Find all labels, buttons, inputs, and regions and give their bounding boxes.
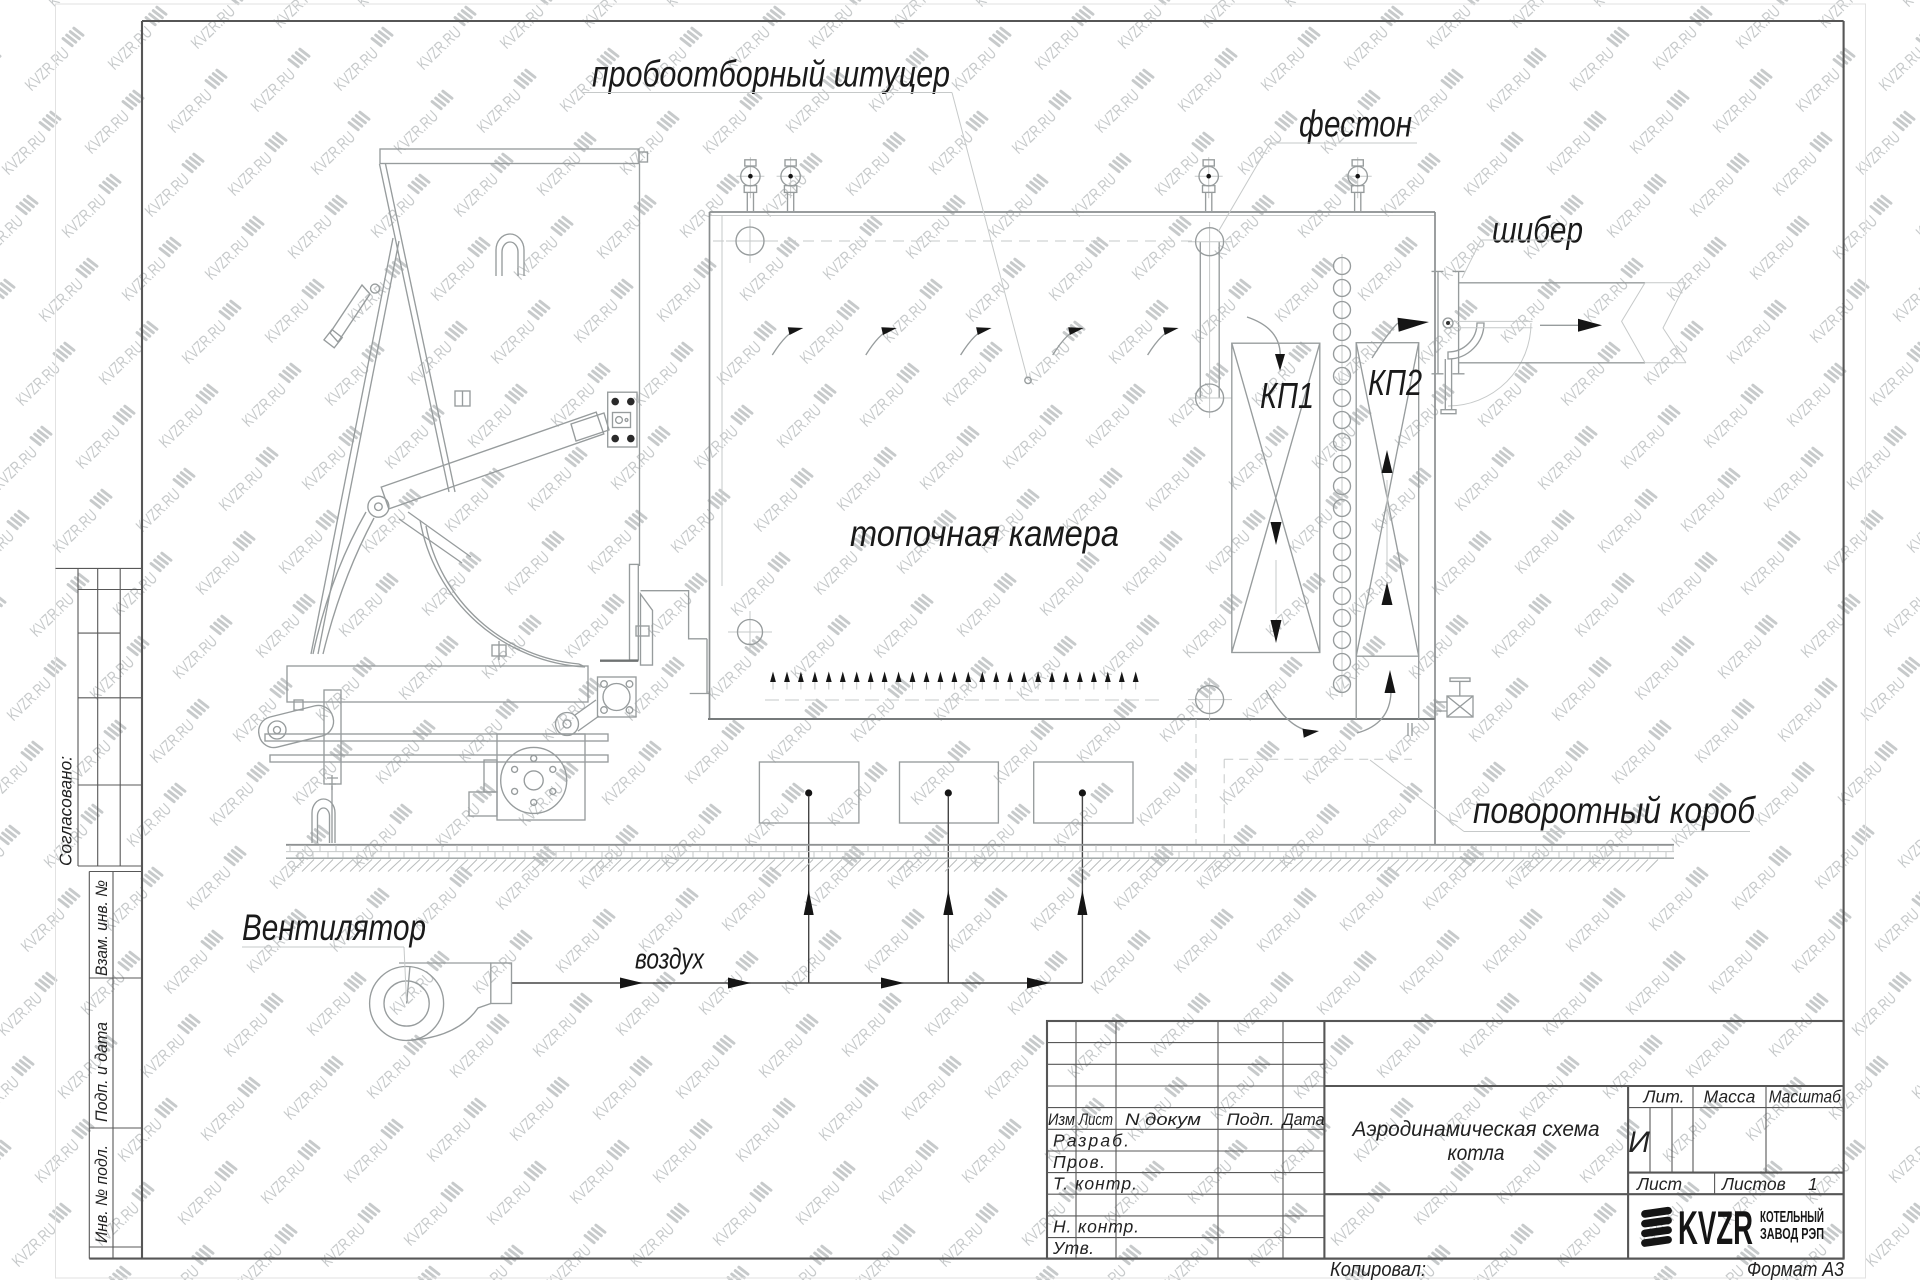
svg-text:Подп.: Подп. <box>1227 1110 1275 1129</box>
svg-text:Аэродинамическая схема: Аэродинамическая схема <box>1351 1117 1600 1141</box>
svg-text:топочная камера: топочная камера <box>850 513 1119 554</box>
svg-text:Масса: Масса <box>1704 1087 1756 1107</box>
svg-text:КП2: КП2 <box>1368 362 1422 403</box>
svg-text:Формат А3: Формат А3 <box>1747 1258 1845 1280</box>
svg-text:Пров.: Пров. <box>1053 1152 1105 1172</box>
svg-text:Подп. и дата: Подп. и дата <box>93 1022 111 1122</box>
svg-text:N докум: N докум <box>1125 1110 1201 1129</box>
svg-text:Копировал:: Копировал: <box>1330 1258 1426 1280</box>
svg-text:воздух: воздух <box>635 944 705 976</box>
svg-text:КП1: КП1 <box>1260 375 1314 416</box>
svg-text:Утв.: Утв. <box>1052 1238 1094 1258</box>
svg-text:пробоотборный штуцер: пробоотборный штуцер <box>592 54 950 95</box>
svg-text:Н. контр.: Н. контр. <box>1053 1217 1139 1237</box>
svg-text:Разраб.: Разраб. <box>1053 1131 1129 1151</box>
svg-text:Лист: Лист <box>1078 1110 1113 1129</box>
svg-text:Лит.: Лит. <box>1643 1087 1685 1107</box>
svg-text:котла: котла <box>1448 1141 1505 1165</box>
svg-text:Взам. инв. №: Взам. инв. № <box>93 880 111 976</box>
svg-text:Т. контр.: Т. контр. <box>1053 1174 1137 1194</box>
svg-text:Лист: Лист <box>1636 1174 1682 1194</box>
svg-text:фестон: фестон <box>1299 104 1412 145</box>
svg-text:ЗАВОД РЭП: ЗАВОД РЭП <box>1760 1226 1824 1243</box>
svg-text:Инв. № подл.: Инв. № подл. <box>93 1145 111 1243</box>
svg-text:Изм: Изм <box>1048 1110 1075 1129</box>
svg-text:поворотный короб: поворотный короб <box>1473 790 1756 831</box>
svg-text:шибер: шибер <box>1492 210 1583 251</box>
svg-text:КОТЕЛЬНЫЙ: КОТЕЛЬНЫЙ <box>1760 1207 1824 1226</box>
svg-text:Листов: Листов <box>1721 1174 1786 1194</box>
svg-text:Вентилятор: Вентилятор <box>242 907 426 948</box>
svg-text:1: 1 <box>1808 1174 1818 1194</box>
svg-text:Дата: Дата <box>1281 1110 1325 1129</box>
svg-text:Масштаб: Масштаб <box>1769 1087 1842 1107</box>
svg-text:KVZR: KVZR <box>1678 1201 1753 1254</box>
svg-text:Согласовано:: Согласовано: <box>56 756 76 866</box>
svg-text:И: И <box>1628 1126 1650 1159</box>
